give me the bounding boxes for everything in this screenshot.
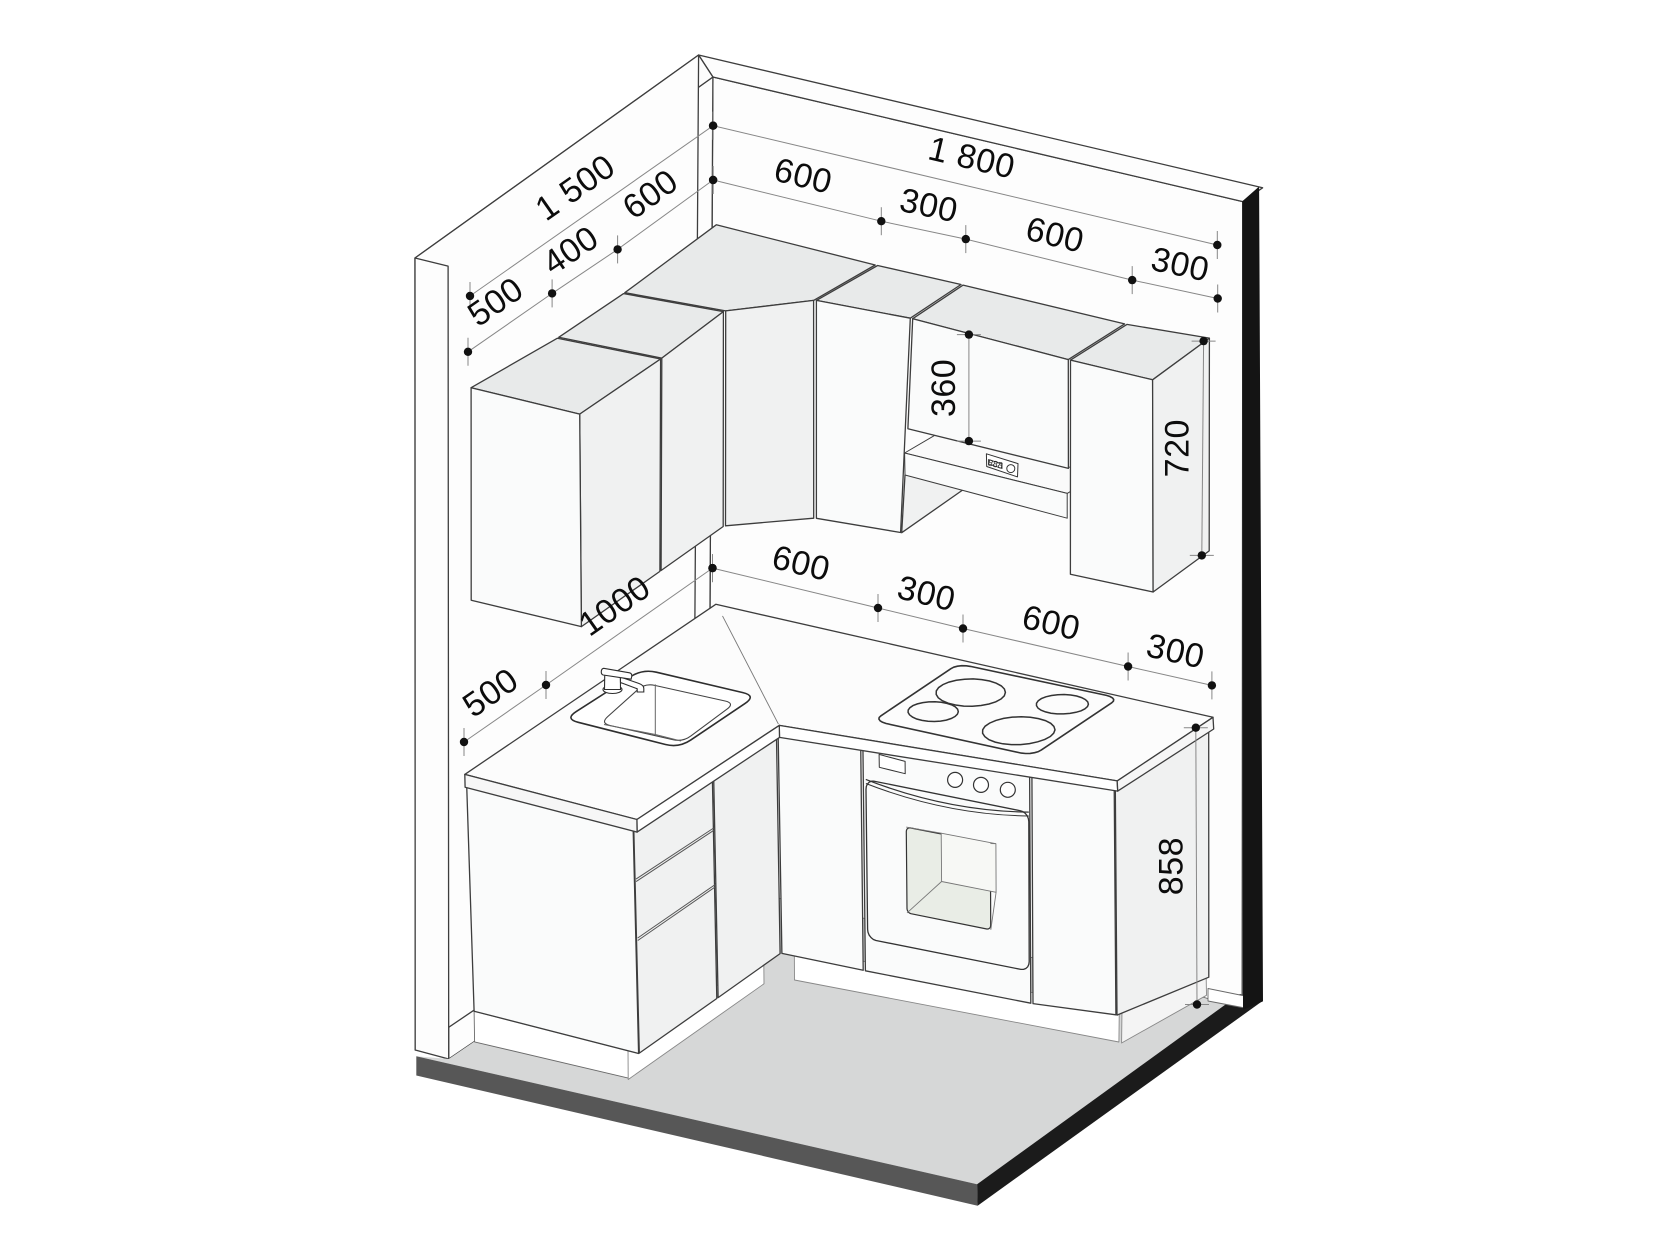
svg-text:720: 720 [1159,419,1197,477]
svg-text:858: 858 [1152,837,1190,895]
svg-text:360: 360 [925,359,963,417]
